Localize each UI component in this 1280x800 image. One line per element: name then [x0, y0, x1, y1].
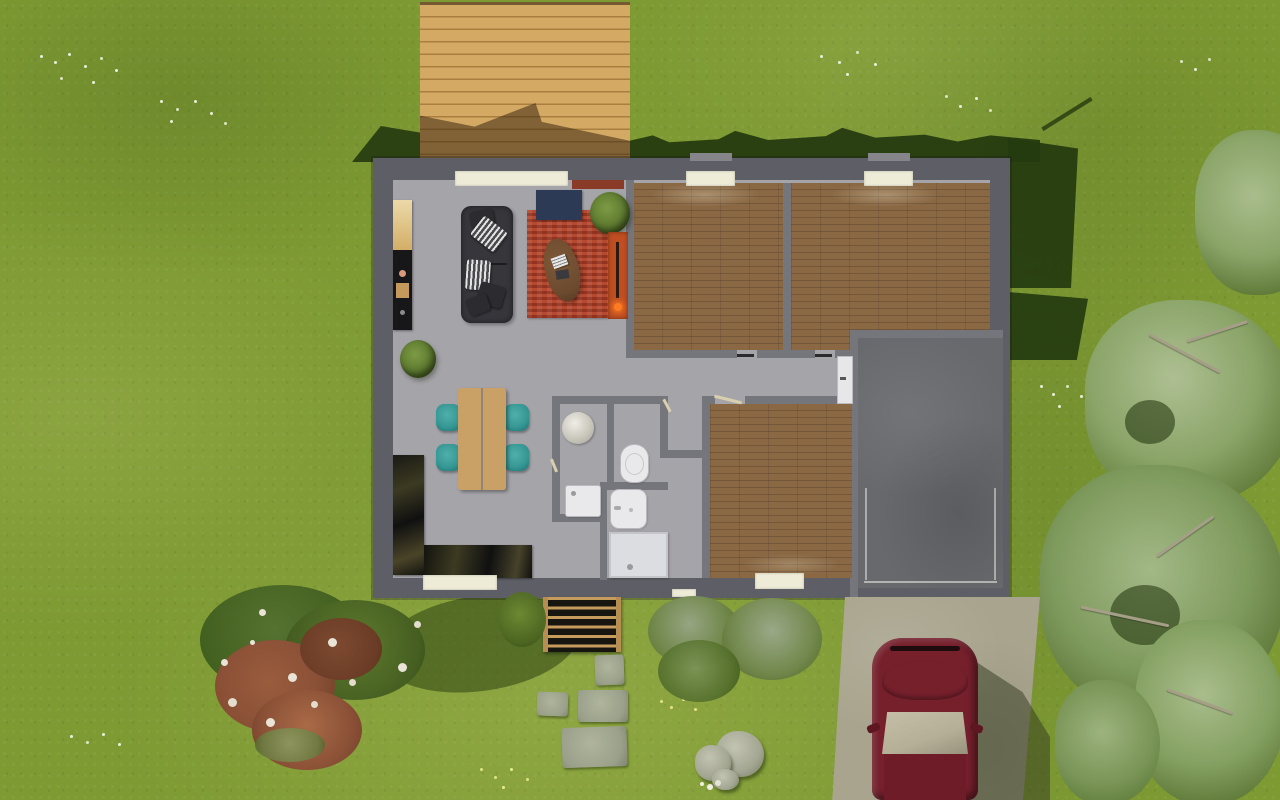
toilet-seat-line: [625, 453, 644, 475]
flowering-bush-stems: [255, 728, 325, 762]
wall-bathroom-wc: [607, 396, 614, 488]
round-vanity: [562, 412, 594, 444]
hall-cabinet-handle: [840, 377, 846, 380]
wildflower-cluster: [480, 768, 483, 771]
car-roof: [884, 754, 966, 800]
kitchen-wall-units: [393, 200, 412, 330]
house-shadow-right-lower: [1008, 292, 1088, 360]
tree-branch: [1167, 688, 1234, 715]
wall-shower-left: [600, 482, 607, 580]
window-sill-bedroom2: [868, 153, 910, 161]
bedroom-2-light-pool: [830, 183, 940, 303]
garage-door-track-right: [994, 488, 996, 580]
kitchen-counter-vertical: [393, 455, 424, 575]
wildflower-cluster: [660, 700, 663, 703]
wall-shelf: [572, 180, 624, 189]
wall-bedroom3-left: [702, 396, 710, 578]
wildflower-cluster: [820, 55, 823, 58]
potted-plant-living: [590, 192, 630, 234]
boulder-small: [712, 769, 739, 790]
window-bedroom3-south: [755, 573, 804, 589]
window-bedroom2-north: [864, 171, 913, 186]
kitchen-tall-cabinet: [393, 200, 412, 250]
stepping-stone: [594, 655, 624, 686]
car-hood-crease: [882, 660, 968, 700]
stepping-stone: [561, 726, 627, 768]
canopy-gap: [1125, 400, 1175, 444]
deck-shadow-overlay: [420, 5, 630, 163]
entry-slat-mat: [543, 597, 621, 652]
toilet: [621, 445, 648, 482]
bedroom-1-light-pool: [650, 183, 760, 303]
wall-garage-top: [850, 330, 1003, 338]
car-grille: [890, 646, 960, 651]
dining-chair: [504, 444, 529, 471]
dining-chair: [504, 404, 529, 431]
kitchen-cooktop-knob: [400, 310, 405, 315]
washing-machine-knob: [571, 491, 576, 496]
hall-cabinet: [838, 357, 852, 403]
dining-table: [458, 388, 506, 490]
car-windshield: [882, 712, 968, 754]
washbasin-faucet: [614, 506, 621, 510]
shower-drain: [627, 564, 633, 570]
wildflower-cluster: [1180, 60, 1183, 63]
washbasin-drain: [629, 508, 633, 512]
kitchen-counter-horizontal: [424, 545, 532, 578]
kitchen-drawer: [396, 283, 409, 298]
garage-door-track-left: [865, 488, 867, 580]
wall-hall-horizontal: [660, 450, 710, 458]
bush-white-flowers: [250, 640, 255, 645]
garage-floor: [858, 338, 1003, 588]
coffee-table-book-dark: [555, 269, 569, 280]
shrub-small: [498, 592, 546, 647]
window-bedroom1-north: [686, 171, 735, 186]
wildflower-cluster: [1040, 385, 1043, 388]
blue-door-mat: [536, 190, 582, 220]
tree-branch: [1155, 515, 1214, 558]
wall-bedroom1-bedroom2: [783, 183, 791, 355]
window-kitchen-south: [423, 575, 497, 590]
wall-wc-bottom: [607, 482, 668, 490]
washing-machine: [566, 486, 600, 516]
wildflower-cluster: [70, 735, 73, 738]
garage-door-sill: [864, 581, 997, 583]
wood-stove-fire-glow: [614, 303, 622, 311]
shower-tray: [609, 532, 668, 578]
shrub: [658, 640, 740, 702]
wildflower-cluster: [160, 100, 163, 103]
tree-canopy: [1135, 620, 1280, 800]
stepping-stone: [578, 690, 628, 722]
washbasin: [611, 490, 646, 528]
potted-plant-dining: [400, 340, 436, 378]
bedroom-2-door-leaf: [815, 354, 832, 357]
kitchen-sink: [399, 270, 406, 277]
window-living-north: [455, 171, 568, 186]
wildflower-cluster: [945, 95, 948, 98]
wood-stove: [608, 232, 628, 319]
wooden-deck: [420, 2, 630, 163]
bedroom-3-light-pool: [730, 470, 840, 575]
tree-canopy-small: [1055, 680, 1160, 800]
bedroom-1-door-leaf: [737, 354, 754, 357]
wildflower-cluster: [40, 55, 43, 58]
flowering-bush-red: [300, 618, 382, 680]
tree-branch: [1186, 320, 1248, 343]
rock-flowers: [700, 782, 704, 786]
window-sill-bedroom1: [690, 153, 732, 161]
parked-car: [872, 638, 978, 800]
stepping-stone: [537, 691, 569, 716]
tree-branch: [1149, 333, 1221, 373]
aerial-home-render: [0, 0, 1280, 800]
house-shadow-right-upper: [1008, 138, 1078, 288]
wood-stove-slot: [616, 242, 619, 298]
